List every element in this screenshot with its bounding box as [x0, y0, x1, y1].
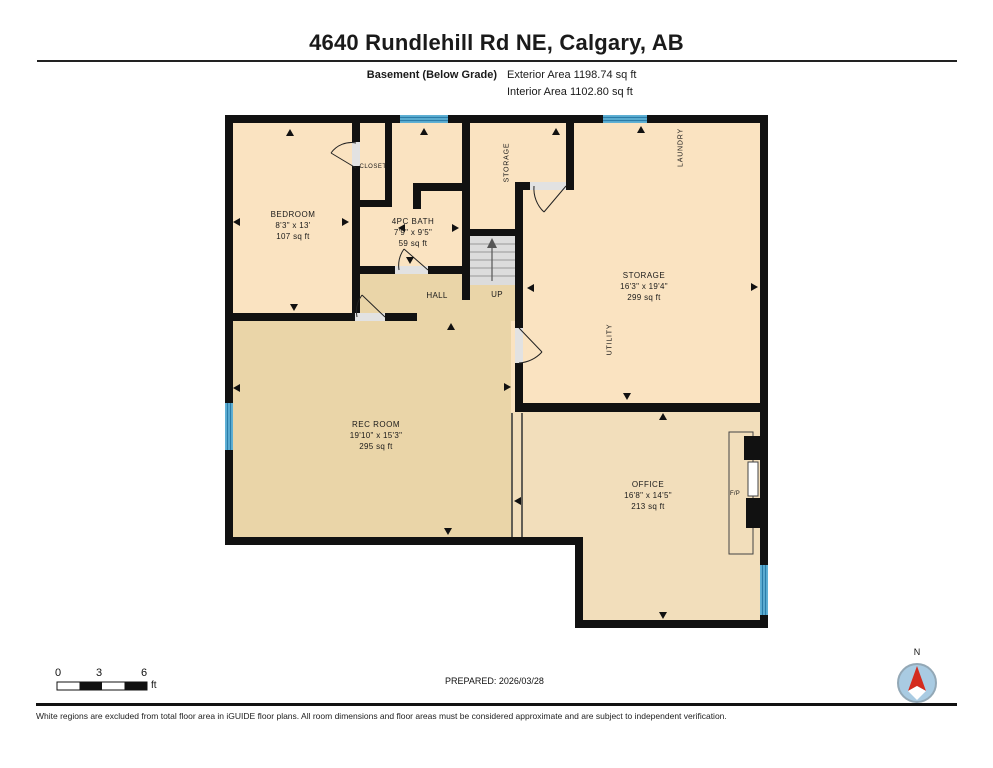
prepared-date: PREPARED: 2026/03/28: [445, 676, 544, 686]
scale-tick-3: 3: [91, 667, 107, 679]
window-icon: [760, 565, 768, 615]
room-fills: [225, 115, 768, 628]
room-label-hall: HALL: [412, 290, 462, 301]
stairs-up-label: UP: [482, 289, 512, 300]
compass-icon: [898, 664, 936, 702]
floor-plan-page: 4640 Rundlehill Rd NE, Calgary, AB Basem…: [0, 0, 993, 768]
room-label-bedroom: BEDROOM 8'3" x 13' 107 sq ft: [243, 209, 343, 242]
window-icon: [225, 403, 233, 450]
staircase: [470, 236, 515, 285]
disclaimer-text: White regions are excluded from total fl…: [36, 711, 916, 721]
scale-tick-0: 0: [50, 667, 66, 679]
footer-divider: [36, 703, 957, 706]
scale-tick-6: 6: [136, 667, 152, 679]
room-label-bath: 4PC BATH 7'9" x 9'5" 59 sq ft: [368, 216, 458, 249]
fireplace-label: F/P: [722, 489, 748, 500]
room-label-storage-small: STORAGE: [504, 123, 511, 203]
scale-unit: ft: [151, 680, 157, 691]
room-label-rec-room: REC ROOM 19'10" x 15'3" 295 sq ft: [326, 419, 426, 452]
room-label-storage: STORAGE 16'3" x 19'4" 299 sq ft: [594, 270, 694, 303]
room-label-closet: CLOSET: [348, 162, 398, 173]
room-label-laundry: LAUNDRY: [678, 108, 685, 188]
scale-bar: [57, 682, 147, 690]
room-label-utility: UTILITY: [607, 300, 614, 380]
window-icon: [603, 115, 647, 123]
room-label-office: OFFICE 16'8" x 14'5" 213 sq ft: [598, 479, 698, 512]
window-icon: [400, 115, 448, 123]
compass-north-label: N: [909, 647, 925, 657]
floor-plan-drawing: [0, 0, 993, 768]
